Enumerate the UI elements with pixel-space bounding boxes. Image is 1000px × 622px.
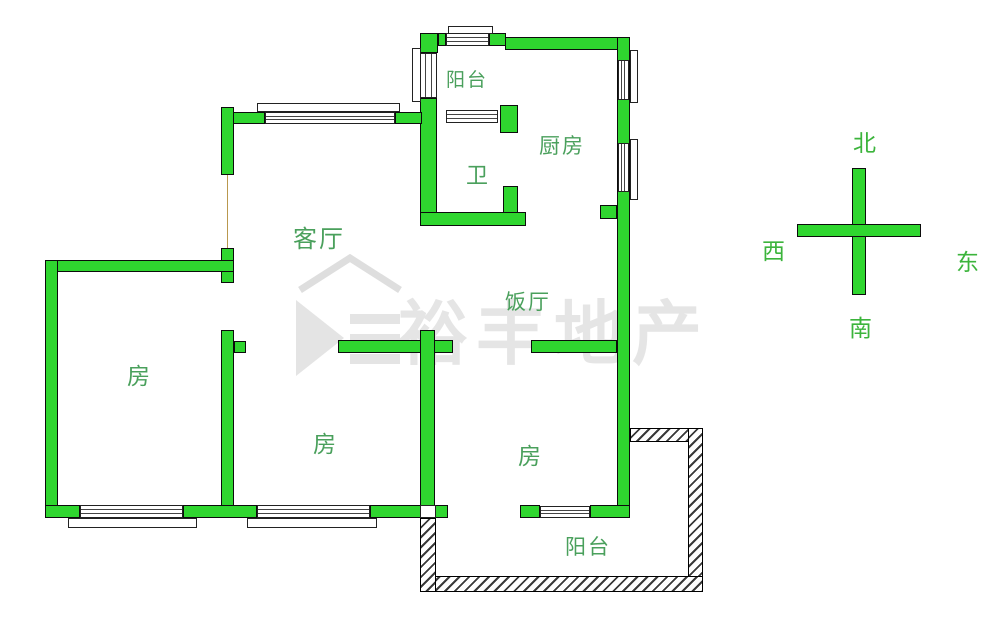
window-bedroom-left [80,505,183,518]
wall-living-left-upper [221,107,234,175]
watermark-text: 裕丰地产 [398,278,710,379]
window-bedroom-right-balcony-door [540,506,590,518]
room-label-balcony-bottom: 阳台 [565,531,611,561]
compass-cross-horizontal [797,224,921,237]
wall-dining-divider-a [338,340,453,353]
balcony-wall-hatched-right [688,428,703,592]
watermark-logo-icon [288,248,408,388]
window-balcony-left [420,53,437,98]
sill-living-top [257,103,400,112]
wall-dining-divider-b [531,340,617,353]
window-balcony-top [446,33,489,46]
sill-kitchen-right-1 [630,50,638,103]
room-label-kitchen: 厨房 [539,130,585,160]
room-label-living: 客厅 [293,219,345,254]
sill-kitchen-right-2 [630,139,638,200]
compass-label-north: 北 [853,124,876,158]
window-living-top [265,112,395,124]
room-label-dining: 饭厅 [505,286,551,316]
wall-kitchen-top [505,37,630,50]
compass-label-east: 东 [956,243,979,277]
sill-balcony-top [448,26,493,34]
sill-bedroom-middle [247,518,377,528]
wall-bottom-b [183,505,257,518]
wall-bedroom-left-top [45,260,234,272]
window-kitchen-right-1 [618,60,629,100]
wall-living-top-b [395,112,422,124]
wall-bedroom-middle-top-stub [234,341,246,353]
wall-kitchen-left-block [500,105,518,133]
compass-label-west: 西 [762,232,785,266]
wall-right-outer [617,37,630,518]
room-label-bedroom-right: 房 [518,437,543,471]
sill-balcony-left [412,48,421,102]
window-balcony-bottom [446,110,498,123]
wall-kitchen-bottom-stub [600,205,617,219]
floorplan-canvas: 裕丰地产 [0,0,1000,622]
door-opening-line [227,175,228,249]
wall-bedroom-divider-right [420,330,435,506]
wall-bottom-d [520,505,540,518]
sill-bedroom-left [68,518,197,528]
balcony-wall-hatched-left [420,518,436,592]
room-label-balcony-top: 阳台 [446,65,488,92]
wall-bathroom-bottom [420,212,526,226]
wall-balcony-bath-left [420,98,437,226]
wall-balcony-top-left-corner [420,33,438,53]
room-label-bathroom: 卫 [466,158,490,190]
wall-bedroom-divider-left [221,330,234,506]
wall-bottom-c [370,505,448,518]
wall-balcony-top-a [438,33,446,46]
wall-bottom-a [45,505,80,518]
wall-balcony-top-right-corner [489,33,506,46]
compass-label-south: 南 [849,309,872,343]
room-label-bedroom-left: 房 [127,357,152,391]
wall-left-outer [45,260,58,518]
wall-bottom-e [590,505,630,518]
room-label-bedroom-middle: 房 [313,425,338,459]
balcony-wall-hatched-bottom [420,576,703,592]
window-bedroom-middle [257,505,370,518]
window-kitchen-right-2 [618,143,629,192]
wall-junction-column [420,505,436,518]
